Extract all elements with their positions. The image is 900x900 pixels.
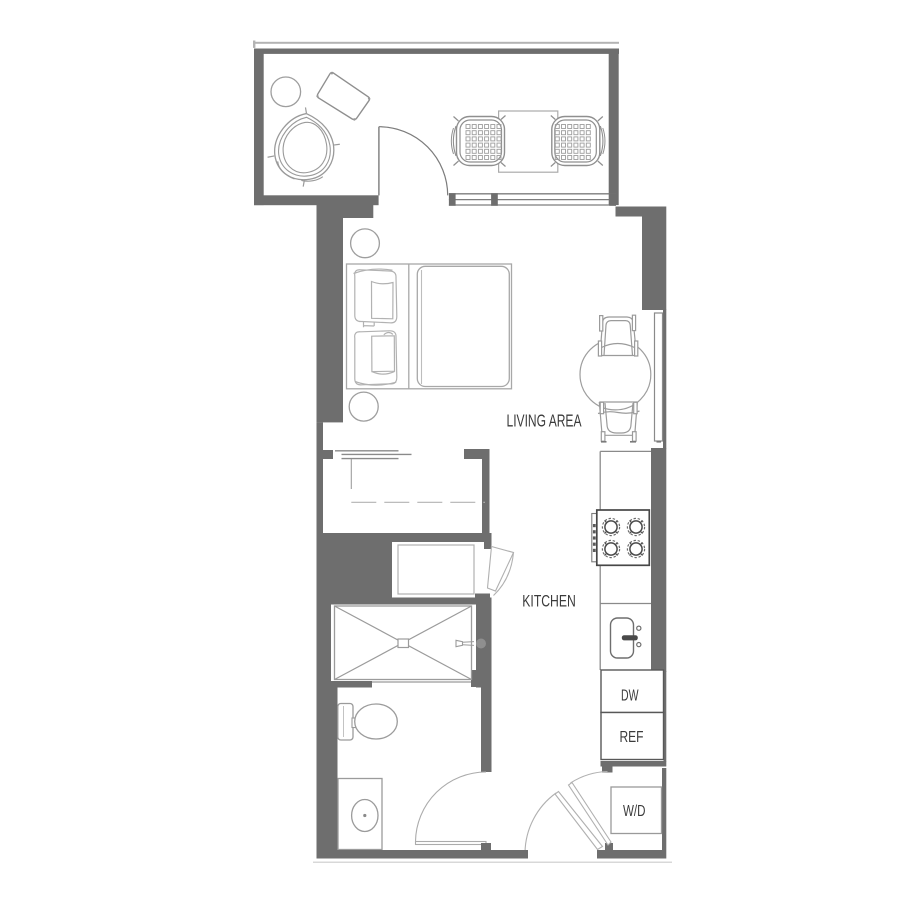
svg-text:LIVING AREA: LIVING AREA: [507, 411, 582, 431]
svg-text:KITCHEN: KITCHEN: [522, 592, 576, 611]
svg-text:DW: DW: [621, 687, 639, 704]
svg-text:W/D: W/D: [623, 803, 646, 820]
svg-text:REF: REF: [620, 729, 644, 746]
